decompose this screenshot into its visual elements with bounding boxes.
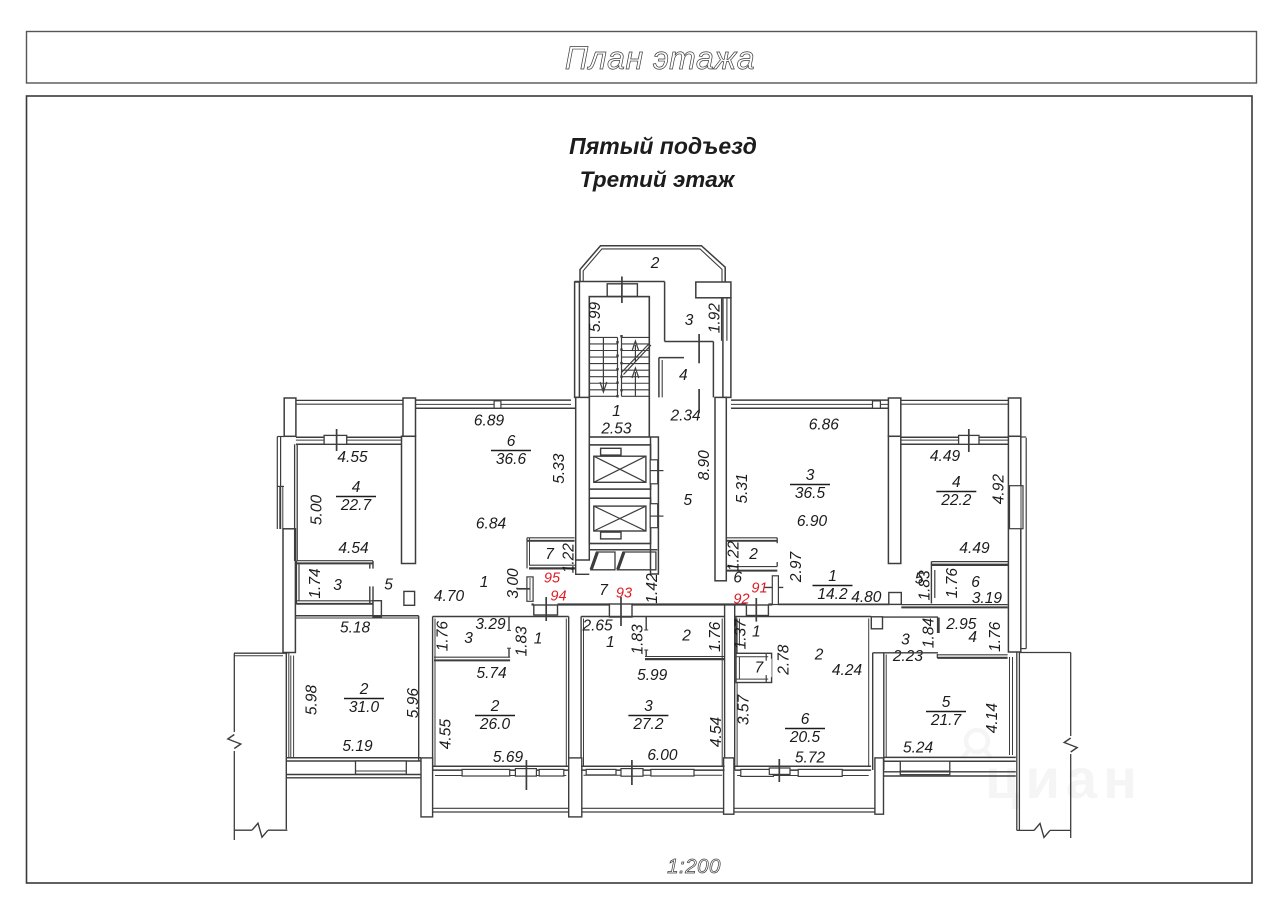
svg-text:2: 2	[748, 546, 758, 563]
svg-text:4: 4	[968, 629, 977, 646]
svg-text:1: 1	[480, 574, 489, 591]
svg-text:1.22: 1.22	[560, 543, 577, 574]
svg-text:22.7: 22.7	[340, 497, 373, 514]
svg-text:4.49: 4.49	[930, 448, 961, 465]
svg-text:1.22: 1.22	[726, 541, 743, 572]
svg-text:2.53: 2.53	[600, 421, 632, 438]
svg-text:1: 1	[828, 568, 837, 585]
svg-text:2.34: 2.34	[670, 408, 702, 425]
svg-text:5.31: 5.31	[734, 473, 751, 503]
svg-text:4.14: 4.14	[984, 703, 1001, 734]
svg-text:92: 92	[733, 592, 749, 608]
svg-text:2.23: 2.23	[892, 648, 924, 665]
svg-text:5: 5	[942, 694, 951, 711]
svg-text:8.90: 8.90	[696, 450, 713, 481]
svg-text:План этажа: План этажа	[565, 40, 755, 76]
svg-text:36.5: 36.5	[795, 485, 826, 502]
svg-text:циан: циан	[985, 747, 1143, 810]
svg-text:5.19: 5.19	[342, 738, 373, 755]
svg-text:31.0: 31.0	[349, 699, 380, 716]
svg-text:5.18: 5.18	[340, 619, 371, 636]
svg-text:1: 1	[606, 634, 615, 651]
svg-text:1: 1	[612, 403, 621, 420]
svg-text:5.00: 5.00	[309, 495, 326, 526]
svg-text:4.70: 4.70	[434, 588, 465, 605]
svg-text:6.90: 6.90	[797, 513, 828, 530]
svg-text:2.65: 2.65	[582, 617, 614, 634]
svg-text:1.76: 1.76	[944, 568, 961, 599]
svg-text:20.5: 20.5	[789, 729, 821, 746]
svg-text:2: 2	[650, 255, 660, 272]
svg-text:26.0: 26.0	[479, 716, 511, 733]
svg-text:Третий этаж: Третий этаж	[580, 167, 736, 192]
svg-text:6.84: 6.84	[476, 516, 507, 533]
svg-text:22.2: 22.2	[940, 492, 972, 509]
svg-text:5.72: 5.72	[795, 750, 826, 767]
svg-text:6.00: 6.00	[647, 747, 678, 764]
svg-text:1.76: 1.76	[435, 621, 452, 652]
svg-text:5: 5	[384, 577, 393, 594]
svg-text:2: 2	[490, 698, 500, 715]
svg-text:3: 3	[685, 312, 694, 329]
svg-text:4.54: 4.54	[338, 540, 369, 557]
svg-text:3: 3	[644, 698, 653, 715]
svg-text:7: 7	[599, 582, 609, 599]
svg-text:4: 4	[679, 367, 688, 384]
svg-text:6: 6	[801, 711, 810, 728]
svg-text:5.98: 5.98	[304, 685, 321, 716]
svg-text:2: 2	[814, 647, 824, 664]
svg-text:1.92: 1.92	[706, 303, 723, 334]
svg-text:4.49: 4.49	[959, 540, 990, 557]
svg-text:1.76: 1.76	[707, 621, 724, 652]
svg-text:3.29: 3.29	[475, 616, 506, 633]
svg-text:5: 5	[683, 492, 692, 509]
svg-text:3: 3	[333, 577, 342, 594]
svg-text:36.6: 36.6	[496, 451, 527, 468]
svg-text:1.83: 1.83	[513, 626, 530, 657]
svg-text:21.7: 21.7	[930, 712, 963, 729]
svg-text:4.55: 4.55	[337, 449, 368, 466]
svg-text:2: 2	[359, 681, 369, 698]
svg-text:5.74: 5.74	[477, 665, 508, 682]
svg-text:1: 1	[534, 631, 543, 648]
svg-text:7: 7	[545, 546, 555, 563]
svg-text:95: 95	[544, 571, 561, 587]
svg-text:5.33: 5.33	[551, 453, 568, 484]
svg-text:4.24: 4.24	[832, 662, 863, 679]
svg-text:1.37: 1.37	[732, 618, 749, 650]
svg-text:6: 6	[507, 433, 516, 450]
svg-text:2.78: 2.78	[776, 644, 793, 676]
svg-text:5.24: 5.24	[903, 739, 934, 756]
svg-text:6: 6	[733, 569, 742, 586]
svg-text:91: 91	[751, 581, 767, 597]
svg-text:14.2: 14.2	[817, 586, 848, 603]
svg-text:1: 1	[752, 624, 761, 641]
svg-text:3.57: 3.57	[736, 694, 753, 726]
svg-text:3: 3	[806, 467, 815, 484]
svg-text:5.96: 5.96	[405, 688, 422, 719]
svg-text:4.92: 4.92	[991, 474, 1008, 505]
svg-text:5.99: 5.99	[587, 302, 604, 333]
svg-text:4.55: 4.55	[438, 719, 455, 750]
svg-text:5.69: 5.69	[493, 749, 524, 766]
svg-text:2.97: 2.97	[788, 551, 805, 584]
svg-text:1.42: 1.42	[644, 573, 661, 604]
svg-text:3: 3	[464, 630, 473, 647]
svg-text:3.00: 3.00	[505, 568, 522, 599]
svg-text:3.19: 3.19	[972, 590, 1003, 607]
svg-text:6.89: 6.89	[474, 413, 505, 430]
svg-text:6.86: 6.86	[809, 417, 840, 434]
svg-text:4: 4	[952, 474, 961, 491]
svg-text:2: 2	[681, 628, 691, 645]
svg-text:5: 5	[915, 571, 924, 588]
svg-text:93: 93	[616, 586, 632, 602]
svg-text:27.2: 27.2	[632, 716, 664, 733]
svg-text:4.54: 4.54	[708, 717, 725, 748]
svg-text:1.83: 1.83	[630, 624, 647, 655]
svg-text:94: 94	[550, 589, 566, 605]
svg-text:1.84: 1.84	[921, 618, 938, 649]
svg-text:1.74: 1.74	[307, 568, 324, 599]
svg-text:6: 6	[971, 574, 980, 591]
svg-text:7: 7	[755, 659, 765, 676]
svg-text:Пятый подъезд: Пятый подъезд	[569, 133, 757, 159]
svg-text:1:200: 1:200	[667, 855, 721, 878]
svg-text:4: 4	[352, 479, 361, 496]
svg-text:3: 3	[901, 631, 910, 648]
svg-text:4.80: 4.80	[851, 589, 882, 606]
svg-text:1.76: 1.76	[987, 621, 1004, 652]
svg-text:5.99: 5.99	[637, 667, 668, 684]
